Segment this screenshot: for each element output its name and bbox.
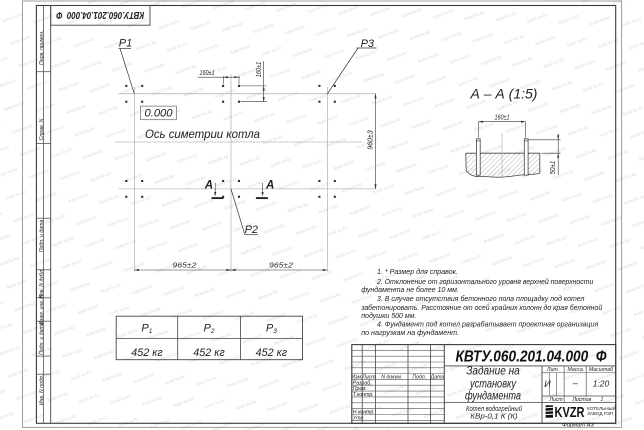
svg-text:КОТЕЛЬНЫЙ: КОТЕЛЬНЫЙ bbox=[587, 404, 616, 411]
svg-text:50±1: 50±1 bbox=[550, 161, 557, 175]
svg-text:по нагрузкам на фундамент.: по нагрузкам на фундамент. bbox=[361, 328, 459, 337]
svg-text:Подп. и дата: Подп. и дата bbox=[39, 322, 45, 355]
svg-text:KVZR: KVZR bbox=[555, 405, 585, 421]
svg-text:Справ. N: Справ. N bbox=[39, 118, 45, 140]
svg-text:452 кг: 452 кг bbox=[256, 347, 288, 359]
svg-text:Ось симетрии котла: Ось симетрии котла bbox=[145, 127, 260, 141]
svg-text:И: И bbox=[544, 379, 551, 389]
svg-text:Подп. и дата: Подп. и дата bbox=[39, 220, 45, 253]
svg-text:Подп.: Подп. bbox=[412, 374, 426, 380]
svg-text:Масштаб: Масштаб bbox=[589, 367, 614, 373]
svg-text:1. * Размер для справок.: 1. * Размер для справок. bbox=[377, 267, 458, 276]
svg-text:Лист: Лист bbox=[548, 397, 563, 403]
svg-text:Взам. инв. N: Взам. инв. N bbox=[39, 294, 45, 324]
svg-text:Листов: Листов bbox=[571, 397, 591, 403]
svg-text:160±1: 160±1 bbox=[256, 62, 263, 78]
svg-text:Дата: Дата bbox=[430, 374, 445, 380]
svg-text:Р2: Р2 bbox=[245, 224, 258, 236]
svg-text:Формат А3: Формат А3 bbox=[562, 423, 594, 429]
svg-text:ЗАВОД РЭП: ЗАВОД РЭП bbox=[587, 411, 613, 416]
svg-text:Котел водогрейный: Котел водогрейный bbox=[466, 405, 522, 413]
svg-text:Утв.: Утв. bbox=[353, 415, 365, 421]
svg-text:0.000: 0.000 bbox=[145, 108, 174, 120]
svg-text:фундамента не более 10 мм.: фундамента не более 10 мм. bbox=[361, 285, 459, 294]
svg-text:965±2: 965±2 bbox=[173, 260, 198, 269]
svg-text:965±2: 965±2 bbox=[269, 260, 294, 269]
svg-text:А: А bbox=[204, 180, 213, 192]
svg-text:452 кг: 452 кг bbox=[193, 347, 225, 359]
svg-text:Инв. N подл.: Инв. N подл. bbox=[39, 375, 45, 405]
svg-text:А – А (1:5): А – А (1:5) bbox=[470, 85, 538, 101]
svg-text:КВТУ.060.201.04.000 Ф: КВТУ.060.201.04.000 Ф bbox=[56, 9, 144, 20]
svg-text:N докум.: N докум. bbox=[381, 374, 402, 380]
svg-text:Т.контр.: Т.контр. bbox=[353, 392, 374, 398]
svg-text:452 кг: 452 кг bbox=[131, 347, 163, 359]
svg-text:960±3: 960±3 bbox=[365, 129, 374, 149]
svg-text:Р1: Р1 bbox=[119, 38, 132, 50]
svg-text:Перв. примен.: Перв. примен. bbox=[39, 30, 45, 64]
svg-text:1: 1 bbox=[600, 397, 603, 403]
svg-text:Лит.: Лит. bbox=[546, 367, 559, 373]
svg-text:3. В случае отсутствия бетонно: 3. В случае отсутствия бетонного пола пл… bbox=[377, 294, 585, 303]
svg-text:–: – bbox=[572, 378, 579, 388]
svg-text:Масса: Масса bbox=[568, 367, 583, 373]
svg-text:Инв. N дубл.: Инв. N дубл. bbox=[39, 269, 45, 299]
svg-text:160±1: 160±1 bbox=[495, 114, 510, 121]
svg-text:4. Фундамент под котел разраба: 4. Фундамент под котел разрабатывает про… bbox=[377, 319, 598, 328]
svg-text:фундамента: фундамента bbox=[465, 389, 521, 403]
svg-text:А: А bbox=[265, 180, 274, 192]
svg-text:1:20: 1:20 bbox=[593, 379, 610, 389]
svg-text:КВр-0,1 К (К): КВр-0,1 К (К) bbox=[470, 413, 517, 420]
svg-text:160±1: 160±1 bbox=[200, 70, 215, 77]
